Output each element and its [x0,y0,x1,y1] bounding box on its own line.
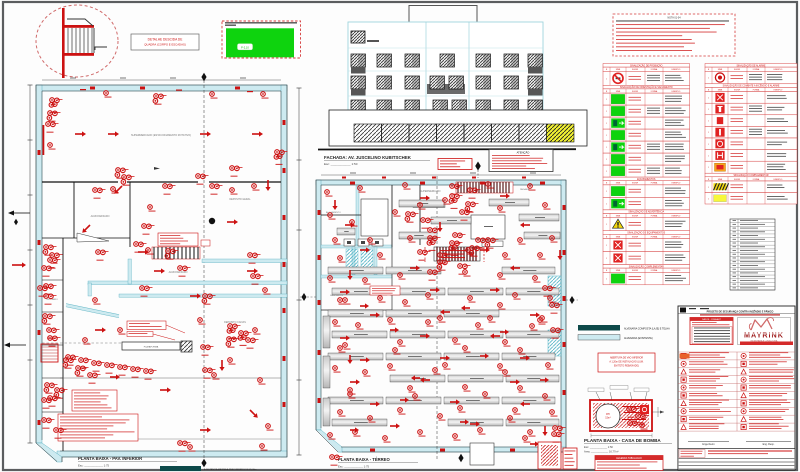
svg-text:SINALIZAÇÃO DE ALARME: SINALIZAÇÃO DE ALARME [737,64,766,67]
svg-text:1: 1 [606,159,607,161]
svg-text:Eng. Resp.: Eng. Resp. [763,443,775,446]
svg-text:SINALIZAÇÃO DE ORIENTAÇÃO E SA: SINALIZAÇÃO DE ORIENTAÇÃO E SALVAMENTO [620,86,673,89]
svg-text:FORMA: FORMA [753,88,760,91]
svg-text:PROJETO DE SEGURANÇA CONTRA IN: PROJETO DE SEGURANÇA CONTRA INCÊNDIO E P… [707,311,774,314]
svg-text:1: 1 [708,121,709,123]
svg-text:1: 1 [708,132,709,134]
svg-text:DETALHE DESCIDA DE: DETALHE DESCIDA DE [148,38,183,42]
svg-text:EXEMPLO: EXEMPLO [672,270,681,272]
svg-text:Esc: ____________ 1:75: Esc: ____________ 1:75 [78,464,110,468]
svg-text:EXEMPLO: EXEMPLO [672,236,681,238]
svg-text:SIGNIF: SIGNIF [734,89,741,91]
svg-text:1: 1 [606,135,607,137]
svg-text:RTI: RTI [606,413,610,416]
svg-text:PLATAFORMA: PLATAFORMA [144,346,159,349]
svg-text:SUPERMERCADO: SUPERMERCADO [420,190,441,193]
svg-text:SIGNIF: SIGNIF [632,183,639,185]
svg-text:1: 1 [708,78,709,80]
svg-text:ALMOXARIFADO: ALMOXARIFADO [169,271,188,274]
svg-text:EQUIPAMENTOS: EQUIPAMENTOS [637,178,656,181]
svg-text:NOTA 01-04: NOTA 01-04 [667,16,681,19]
svg-text:15m³: 15m³ [605,417,611,420]
svg-text:1: 1 [708,155,709,157]
svg-text:PLANTA BAIXA - PAV. INFERIOR: PLANTA BAIXA - PAV. INFERIOR [78,456,142,461]
svg-text:EXEMPLO: EXEMPLO [672,91,681,93]
svg-text:ABERTURA DE VAO INFERIOR: ABERTURA DE VAO INFERIOR [610,356,643,359]
svg-text:1: 1 [708,187,709,189]
svg-text:FORMA: FORMA [753,178,760,181]
svg-text:SINALIZAÇÃO DE COMBATE A INCÊN: SINALIZAÇÃO DE COMBATE A INCÊNDIO E ALAR… [723,85,780,88]
svg-text:FACHADA: AV. JUSCELINO KUBITSC: FACHADA: AV. JUSCELINO KUBITSCHEK [324,155,412,160]
svg-text:SINALIZAÇÃO COMPLEMENTAR: SINALIZAÇÃO COMPLEMENTAR [733,174,768,177]
svg-text:FORMA: FORMA [651,182,658,185]
svg-text:1: 1 [606,258,607,260]
svg-text:SIGNIF: SIGNIF [734,69,741,71]
svg-text:PADARIA: PADARIA [520,188,530,191]
svg-text:P-2,10: P-2,10 [241,45,249,49]
svg-text:EXEMPLO: EXEMPLO [672,183,681,185]
svg-text:ALVENARIA (EXISTENTE): ALVENARIA (EXISTENTE) [624,337,653,340]
svg-text:1: 1 [606,111,607,113]
svg-text:1: 1 [606,279,607,281]
svg-text:SINALIZAÇÃO DE PROIBIÇÃO: SINALIZAÇÃO DE PROIBIÇÃO [630,64,663,67]
svg-text:EXEMPLO: EXEMPLO [774,89,783,91]
svg-text:FORMA: FORMA [651,215,658,218]
svg-text:1: 1 [708,109,709,111]
svg-text:SUPERMERCADO (ESTACIONAMENTO R: SUPERMERCADO (ESTACIONAMENTO ROTATIVO) [131,134,191,137]
svg-text:1: 1 [606,78,607,80]
svg-text:FORMA: FORMA [753,68,760,71]
svg-text:SIGNIF: SIGNIF [632,69,639,71]
svg-text:SIGNIF: SIGNIF [632,236,639,238]
svg-text:SINALIZAÇÃO COMPLEMENTAR: SINALIZAÇÃO COMPLEMENTAR [629,265,664,268]
svg-text:SIGNIF: SIGNIF [632,270,639,272]
svg-text:EM TETO REBAIXADO): EM TETO REBAIXADO) [614,364,639,367]
svg-text:1: 1 [708,167,709,169]
svg-text:PLANTA BAIXA - CASA DE BOMBA: PLANTA BAIXA - CASA DE BOMBA [584,438,661,443]
svg-text:1: 1 [606,99,607,101]
svg-text:ALVENARIA COMPOSTA (LAJE) E TE: ALVENARIA COMPOSTA (LAJE) E TELHA [624,327,670,330]
svg-text:SIGNIF: SIGNIF [632,216,639,218]
svg-text:1: 1 [606,191,607,193]
svg-text:EXEMPLO: EXEMPLO [774,179,783,181]
svg-text:1: 1 [606,224,607,226]
svg-text:1: 1 [606,245,607,247]
svg-text:DEPOSITO GERAL: DEPOSITO GERAL [229,198,251,201]
svg-text:FORMA: FORMA [651,90,658,93]
svg-text:Esc: ____________ 1:50: Esc: ____________ 1:50 [324,162,358,166]
svg-text:LEGENDA TUBULACAO: LEGENDA TUBULACAO [616,457,642,460]
svg-text:SINALIZAÇÃO DE ADVERTÊNCIA: SINALIZAÇÃO DE ADVERTÊNCIA [628,211,664,214]
svg-text:FORMA: FORMA [651,68,658,71]
svg-text:DADOS - CREA/ART: DADOS - CREA/ART [702,318,722,321]
svg-text:QUADRA (CORPO E ESCADAS): QUADRA (CORPO E ESCADAS) [144,43,186,47]
svg-text:1: 1 [708,144,709,146]
svg-text:SIGNIF: SIGNIF [734,179,741,181]
svg-text:1: 1 [606,204,607,206]
svg-text:1: 1 [708,198,709,200]
svg-text:FORMA: FORMA [651,235,658,238]
svg-text:PLANTA BAIXA - TÉRREO: PLANTA BAIXA - TÉRREO [338,457,390,462]
svg-text:EXEMPLO: EXEMPLO [672,216,681,218]
svg-text:A 1,20m DE INSTALACAO (LUM.: A 1,20m DE INSTALACAO (LUM. [609,360,644,363]
svg-text:ALMOXARIFADO: ALMOXARIFADO [91,215,110,218]
svg-text:EXEMPLO: EXEMPLO [672,69,681,71]
svg-text:FORMA: FORMA [651,269,658,272]
svg-text:Esc: ____________ 1:50: Esc: ____________ 1:50 [584,445,613,449]
svg-text:MAYRINK: MAYRINK [744,331,784,340]
svg-text:SIGNIF: SIGNIF [632,91,639,93]
svg-text:1: 1 [606,147,607,149]
svg-text:EXEMPLO: EXEMPLO [774,69,783,71]
svg-text:Area: ____________ 16,77m²: Area: ____________ 16,77m² [584,449,619,453]
svg-text:1: 1 [708,97,709,99]
svg-text:1: 1 [606,171,607,173]
svg-text:1: 1 [606,123,607,125]
svg-text:DEPOSITO CAIXAS: DEPOSITO CAIXAS [224,321,246,324]
svg-text:SINALIZAÇÃO DE EQUIPAMENTOS: SINALIZAÇÃO DE EQUIPAMENTOS [627,232,665,235]
svg-text:Engenheiro: Engenheiro [702,443,715,446]
svg-text:A DISTANCIA MAXIMA A PERCORRER: A DISTANCIA MAXIMA A PERCORRER E DE 45,0… [204,468,257,471]
svg-text:SANITARIOS: SANITARIOS [330,294,344,297]
svg-text:Esc: ____________ 1:75: Esc: ____________ 1:75 [338,465,370,469]
